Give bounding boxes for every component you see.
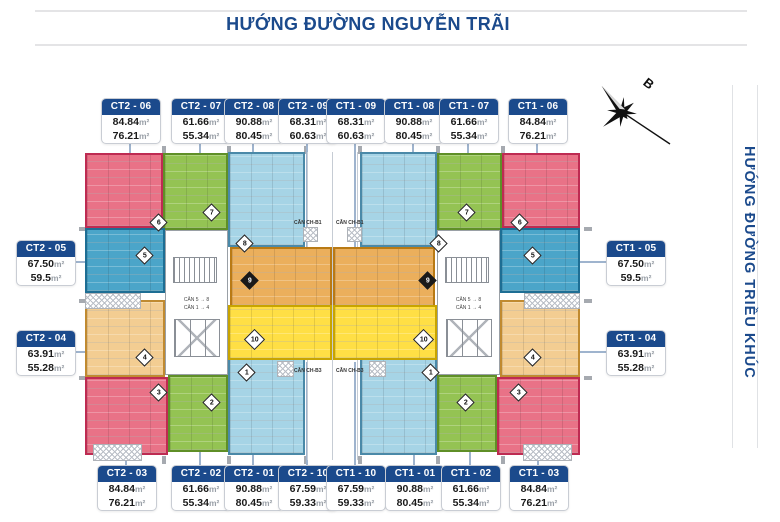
balcony-hatch <box>93 444 142 461</box>
unit-block-ct2-07[interactable] <box>163 153 228 230</box>
balcony-hatch <box>347 227 362 242</box>
unit-card-ct1-07[interactable]: CT1 - 0761.66m²55.34m² <box>439 98 499 144</box>
floor-plan-page: HƯỚNG ĐƯỜNG NGUYỄN TRÃI HƯỚNG ĐƯỜNG TRIỀ… <box>0 0 780 522</box>
unit-card-title: CT2 - 01 <box>225 466 283 482</box>
unit-card-title: CT1 - 07 <box>440 99 498 115</box>
compass-icon: B <box>588 64 680 150</box>
unit-area-value: 61.66m² <box>172 482 230 496</box>
unit-card-ct2-02[interactable]: CT2 - 0261.66m²55.34m² <box>171 465 231 511</box>
unit-area-value: 90.88m² <box>225 482 283 496</box>
unit-area-value: 80.45m² <box>385 129 443 143</box>
unit-card-title: CT1 - 05 <box>607 241 665 257</box>
unit-card-ct1-10[interactable]: CT1 - 1067.59m²59.33m² <box>326 465 386 511</box>
card-connector-line <box>469 452 471 466</box>
unit-area-value: 59.33m² <box>327 496 385 510</box>
card-connector-line <box>199 452 201 466</box>
unit-card-ct1-03[interactable]: CT1 - 0384.84m²76.21m² <box>509 465 569 511</box>
unit-area-value: 80.45m² <box>225 496 283 510</box>
unit-card-title: CT2 - 03 <box>98 466 156 482</box>
unit-block-ct1-06[interactable] <box>502 153 580 228</box>
unit-card-ct1-06[interactable]: CT1 - 0684.84m²76.21m² <box>508 98 568 144</box>
bridge-unit-label: CĂN CH-B3 <box>294 368 322 374</box>
unit-area-value: 84.84m² <box>102 115 160 129</box>
ct1-core: CĂN 5 → 8 CĂN 1 → 4 <box>437 230 500 375</box>
unit-card-ct1-08[interactable]: CT1 - 0890.88m²80.45m² <box>384 98 444 144</box>
unit-area-value: 84.84m² <box>98 482 156 496</box>
dimension-stub <box>227 456 231 464</box>
unit-card-ct2-03[interactable]: CT2 - 0384.84m²76.21m² <box>97 465 157 511</box>
balcony-hatch <box>85 293 141 309</box>
unit-area-value: 55.34m² <box>440 129 498 143</box>
dimension-stub <box>584 376 592 380</box>
unit-area-value: 61.66m² <box>442 482 500 496</box>
unit-area-value: 90.88m² <box>225 115 283 129</box>
unit-area-value: 55.34m² <box>442 496 500 510</box>
card-connector-line <box>354 362 356 466</box>
ct2-core-label: CĂN 1 → 4 <box>166 305 227 311</box>
unit-area-value: 67.59m² <box>327 482 385 496</box>
ct1-core-label: CĂN 1 → 4 <box>438 305 499 311</box>
unit-area-value: 61.66m² <box>440 115 498 129</box>
right-divider-line-2 <box>757 85 758 448</box>
balcony-hatch <box>523 444 572 461</box>
unit-area-value: 84.84m² <box>509 115 567 129</box>
unit-block-ct1-02[interactable] <box>437 375 497 452</box>
unit-block-ct1-08[interactable] <box>360 152 437 247</box>
unit-card-title: CT1 - 08 <box>385 99 443 115</box>
unit-area-value: 55.28m² <box>17 361 75 375</box>
unit-card-title: CT2 - 02 <box>172 466 230 482</box>
unit-block-ct2-08[interactable] <box>228 152 305 247</box>
unit-card-ct1-09[interactable]: CT1 - 0968.31m²60.63m² <box>326 98 386 144</box>
unit-area-value: 59.5m² <box>17 271 75 285</box>
bridge-unit-label: CĂN CH-B3 <box>336 368 364 374</box>
unit-area-value: 76.21m² <box>509 129 567 143</box>
ct2-stairs-icon <box>173 257 217 283</box>
ct2-core: CĂN 5 → 8 CĂN 1 → 4 <box>165 230 228 375</box>
unit-card-ct2-04[interactable]: CT2 - 0463.91m²55.28m² <box>16 330 76 376</box>
unit-area-value: 76.21m² <box>98 496 156 510</box>
dimension-stub <box>358 456 362 464</box>
unit-card-title: CT1 - 09 <box>327 99 385 115</box>
unit-area-value: 67.50m² <box>17 257 75 271</box>
balcony-hatch <box>303 227 318 242</box>
ct1-core-label: CĂN 5 → 8 <box>438 297 499 303</box>
card-connector-line <box>580 351 606 353</box>
balcony-hatch <box>369 361 386 377</box>
dimension-stub <box>436 456 440 464</box>
unit-area-value: 60.63m² <box>327 129 385 143</box>
unit-block-ct1-04[interactable] <box>500 300 580 377</box>
unit-area-value: 80.45m² <box>386 496 444 510</box>
bridge-unit-label: CĂN CH-B1 <box>336 220 364 226</box>
street-label-top: HƯỚNG ĐƯỜNG NGUYỄN TRÃI <box>148 14 588 35</box>
unit-area-value: 80.45m² <box>225 129 283 143</box>
ct2-elevator-icon <box>174 319 220 357</box>
unit-block-ct1-05[interactable] <box>500 228 580 293</box>
unit-area-value: 76.21m² <box>510 496 568 510</box>
unit-card-title: CT1 - 01 <box>386 466 444 482</box>
top-divider-line <box>35 10 747 12</box>
street-label-right: HƯỚNG ĐƯỜNG TRIỀU KHÚC <box>733 62 757 462</box>
unit-card-ct2-05[interactable]: CT2 - 0567.50m²59.5m² <box>16 240 76 286</box>
unit-card-title: CT2 - 05 <box>17 241 75 257</box>
top-divider-line-2 <box>35 44 747 46</box>
card-connector-line <box>580 261 606 263</box>
unit-card-ct1-05[interactable]: CT1 - 0567.50m²59.5m² <box>606 240 666 286</box>
unit-card-ct2-07[interactable]: CT2 - 0761.66m²55.34m² <box>171 98 231 144</box>
unit-card-title: CT1 - 02 <box>442 466 500 482</box>
unit-card-title: CT2 - 06 <box>102 99 160 115</box>
unit-card-ct1-01[interactable]: CT1 - 0190.88m²80.45m² <box>385 465 445 511</box>
unit-block-ct1-09[interactable] <box>333 247 435 307</box>
unit-card-title: CT2 - 08 <box>225 99 283 115</box>
unit-area-value: 76.21m² <box>102 129 160 143</box>
unit-area-value: 67.50m² <box>607 257 665 271</box>
unit-card-title: CT1 - 06 <box>509 99 567 115</box>
ct1-stairs-icon <box>445 257 489 283</box>
unit-block-ct2-02[interactable] <box>168 375 228 452</box>
unit-area-value: 63.91m² <box>607 347 665 361</box>
unit-area-value: 68.31m² <box>327 115 385 129</box>
ct1-elevator-icon <box>446 319 492 357</box>
bridge-unit-label: CĂN CH-B1 <box>294 220 322 226</box>
unit-area-value: 63.91m² <box>17 347 75 361</box>
unit-block-ct2-10[interactable] <box>228 305 332 360</box>
unit-area-value: 90.88m² <box>386 482 444 496</box>
dimension-stub <box>584 299 592 303</box>
unit-card-title: CT1 - 10 <box>327 466 385 482</box>
unit-card-title: CT2 - 04 <box>17 331 75 347</box>
dimension-stub <box>162 456 166 464</box>
unit-card-ct2-01[interactable]: CT2 - 0190.88m²80.45m² <box>224 465 284 511</box>
balcony-hatch <box>277 361 294 377</box>
unit-area-value: 84.84m² <box>510 482 568 496</box>
balcony-hatch <box>524 293 580 309</box>
unit-card-ct2-08[interactable]: CT2 - 0890.88m²80.45m² <box>224 98 284 144</box>
unit-area-value: 90.88m² <box>385 115 443 129</box>
unit-block-ct2-05[interactable] <box>85 228 165 293</box>
unit-block-ct2-06[interactable] <box>85 153 163 228</box>
dimension-stub <box>584 227 592 231</box>
unit-area-value: 55.28m² <box>607 361 665 375</box>
unit-card-ct2-06[interactable]: CT2 - 0684.84m²76.21m² <box>101 98 161 144</box>
unit-block-ct2-04[interactable] <box>85 300 165 377</box>
dimension-stub <box>501 456 505 464</box>
unit-card-title: CT2 - 07 <box>172 99 230 115</box>
unit-area-value: 59.5m² <box>607 271 665 285</box>
unit-area-value: 55.34m² <box>172 129 230 143</box>
unit-card-title: CT1 - 03 <box>510 466 568 482</box>
unit-card-ct1-04[interactable]: CT1 - 0463.91m²55.28m² <box>606 330 666 376</box>
unit-card-title: CT1 - 04 <box>607 331 665 347</box>
unit-card-ct1-02[interactable]: CT1 - 0261.66m²55.34m² <box>441 465 501 511</box>
unit-area-value: 55.34m² <box>172 496 230 510</box>
ct2-core-label: CĂN 5 → 8 <box>166 297 227 303</box>
unit-area-value: 61.66m² <box>172 115 230 129</box>
